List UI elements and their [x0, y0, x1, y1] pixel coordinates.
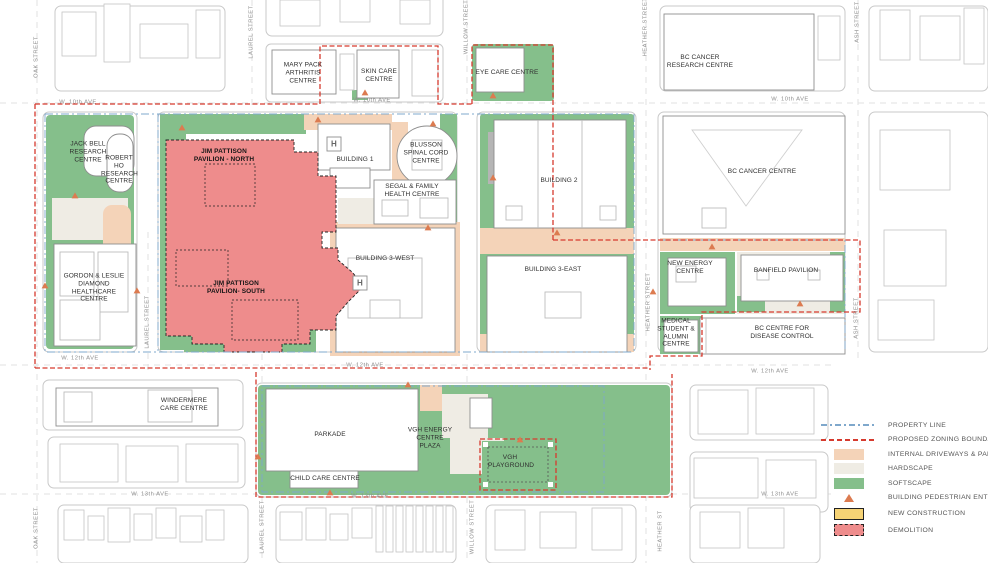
avenue-label-10th-east: W. 10th AVE [771, 97, 809, 104]
avenue-label-12th-west: W. 12th AVE [61, 356, 99, 363]
hardscape-swatch [834, 463, 864, 474]
avenue-label-13th-west: W. 13th AVE [131, 492, 169, 499]
building-label-mary-pack: MARY PACK ARTHRITIS CENTRE [277, 61, 329, 84]
building-label-blusson: BLUSSON SPINAL CORD CENTRE [402, 141, 450, 164]
building-label-medical-student-alumni: MEDICAL STUDENT & ALUMNI CENTRE [656, 317, 696, 348]
zoning-boundary-swatch [821, 439, 877, 441]
building-label-robert-ho: ROBERT HO RESEARCH CENTRE [101, 154, 137, 185]
legend-label: PROPOSED ZONING BOUNDARY [888, 436, 988, 443]
building-label-building-3-west: BUILDING 3-WEST [356, 255, 415, 263]
legend-label: DEMOLITION [888, 527, 933, 534]
building-label-eye-care: EYE CARE CENTRE [476, 69, 539, 77]
legend-item-zoning-boundary: PROPOSED ZONING BOUNDARY [820, 435, 988, 445]
legend-item-property-line: PROPERTY LINE [820, 420, 988, 430]
building-label-jim-pattison-south: JIM PATTISON PAVILION- SOUTH [204, 280, 268, 296]
building-label-jim-pattison-north: JIM PATTISON PAVILION - NORTH [192, 148, 256, 164]
building-label-bc-cancer-research: BC CANCER RESEARCH CENTRE [665, 54, 735, 70]
legend-item-driveways-parking: INTERNAL DRIVEWAYS & PARKING [820, 449, 988, 459]
street-label-oak-north: OAK STREET [34, 36, 41, 78]
avenue-label-10th-mid: W. 10th AVE [353, 98, 391, 105]
property-line-swatch [821, 424, 877, 426]
street-label-ash-north: ASH STREET [855, 1, 862, 42]
driveways-swatch [834, 449, 864, 460]
building-label-bc-cancer-centre: BC CANCER CENTRE [728, 168, 796, 176]
helipad-icon: H [331, 140, 337, 149]
legend: PROPERTY LINE PROPOSED ZONING BOUNDARY I… [820, 420, 988, 541]
legend-item-pedestrian-entrance: BUILDING PEDESTRIAN ENTRANCE [820, 493, 988, 503]
avenue-label-12th-mid: W. 12th AVE [346, 363, 384, 370]
legend-label: BUILDING PEDESTRIAN ENTRANCE [888, 494, 988, 501]
building-label-bc-cdc: BC CENTRE FOR DISEASE CONTROL [746, 325, 818, 341]
legend-item-new-construction: NEW CONSTRUCTION [820, 508, 988, 520]
street-label-heather-south: HEATHER ST [658, 510, 665, 551]
legend-label: HARDSCAPE [888, 465, 933, 472]
street-label-oak-south: OAK STREET [34, 507, 41, 549]
legend-item-demolition: DEMOLITION [820, 524, 988, 536]
street-label-willow-south: WILLOW STREET [470, 500, 477, 555]
demolition-swatch [834, 524, 864, 536]
new-construction-swatch [834, 508, 864, 520]
building-label-diamond-healthcare: GORDON & LESLIE DIAMOND HEALTHCARE CENTR… [62, 272, 126, 303]
street-label-laurel-north: LAUREL STREET [249, 5, 256, 58]
building-label-banfield: BANFIELD PAVILION [754, 267, 818, 275]
legend-label: NEW CONSTRUCTION [888, 510, 965, 517]
building-label-new-energy: NEW ENERGY CENTRE [665, 260, 715, 276]
avenue-label-13th-east: W. 13th AVE [761, 492, 799, 499]
legend-label: SOFTSCAPE [888, 480, 932, 487]
building-label-child-care: CHILD CARE CENTRE [290, 475, 360, 483]
avenue-label-12th-east: W. 12th AVE [751, 369, 789, 376]
building-label-building-1: BUILDING 1 [336, 156, 373, 164]
building-label-segal: SEGAL & FAMILY HEALTH CENTRE [381, 183, 443, 199]
building-label-windermere: WINDERMERE CARE CENTRE [160, 397, 208, 413]
legend-item-hardscape: HARDSCAPE [820, 464, 988, 474]
legend-item-softscape: SOFTSCAPE [820, 478, 988, 488]
softscape-swatch [834, 478, 864, 489]
street-label-heather-mid: HEATHER STREET [646, 273, 653, 332]
legend-label: PROPERTY LINE [888, 422, 946, 429]
building-label-building-2: BUILDING 2 [540, 177, 577, 185]
avenue-label-13th-mid: W. 13th AVE [351, 494, 389, 501]
building-label-building-3-east: BUILDING 3-EAST [525, 266, 582, 274]
helipad-icon: H [357, 279, 363, 288]
building-label-parkade: PARKADE [314, 431, 345, 439]
building-label-skin-care: SKIN CARE CENTRE [361, 68, 397, 84]
street-label-heather-north: HEATHER STREET [643, 0, 650, 56]
street-label-willow-north: WILLOW STREET [464, 0, 471, 54]
avenue-label-10th-west: W. 10th AVE [59, 100, 97, 107]
street-label-laurel-south: LAUREL STREET [260, 500, 267, 553]
legend-label: INTERNAL DRIVEWAYS & PARKING [888, 451, 988, 458]
building-label-vgh-playground: VGH PLAYGROUND [488, 454, 532, 470]
street-label-ash-mid: ASH STREET [854, 297, 861, 338]
pedestrian-entrance-swatch [844, 494, 854, 502]
street-label-laurel-mid: LAUREL STREET [145, 295, 152, 348]
building-label-vgh-energy-plaza: VGH ENERGY CENTRE PLAZA [405, 426, 455, 449]
site-plan: OAK STREET LAUREL STREET WILLOW STREET H… [0, 0, 988, 563]
